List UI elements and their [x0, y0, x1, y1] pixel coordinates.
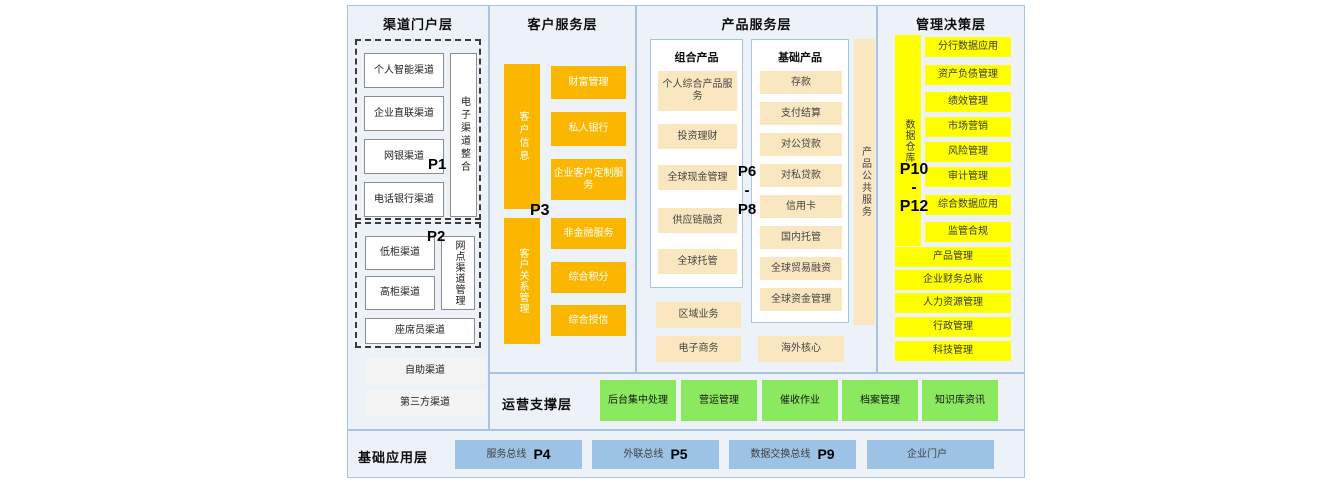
foundation-box-label: 服务总线 [486, 449, 526, 461]
foundation-box: 外联总线 P5 [592, 440, 719, 469]
p12-label: P12 [892, 198, 936, 216]
channel-box: 高柜渠道 [365, 276, 435, 310]
branch-channel-mgmt-label: 网点渠道管理 [452, 240, 464, 306]
product-box: 投资理财 [658, 124, 737, 149]
product-box: 存款 [760, 71, 842, 94]
service-box: 财富管理 [551, 66, 626, 99]
p10-p12-label: P10 - P12 [892, 161, 936, 216]
p-dash: - [892, 179, 936, 197]
foundation-box-label: 数据交换总线 [750, 449, 810, 461]
operation-box: 知识库资讯 [922, 380, 998, 421]
layer-operation-title: 运营支撑层 [502, 394, 572, 413]
management-box: 资产负债管理 [925, 65, 1011, 85]
management-box: 分行数据应用 [925, 37, 1011, 57]
basic-product-panel: 基础产品 存款 支付结算 对公贷款 对私贷款 信用卡 国内托管 全球贸易融资 全… [751, 39, 849, 323]
channel-box: 第三方渠道 [365, 390, 485, 416]
p6-label: P6 [732, 163, 762, 182]
channel-box: 座席员渠道 [365, 318, 475, 344]
customer-info-label: 客户信息 [516, 111, 528, 163]
channel-box: 低柜渠道 [365, 236, 435, 270]
foundation-box-label: 外联总线 [623, 449, 663, 461]
overseas-core-box: 海外核心 [758, 336, 844, 362]
management-wide-box: 企业财务总账 [895, 270, 1011, 290]
combo-product-title: 组合产品 [651, 40, 742, 65]
layer-customer-title: 客户服务层 [490, 6, 635, 33]
product-box: 全球资金管理 [760, 288, 842, 311]
management-box: 审计管理 [925, 167, 1011, 187]
operation-box: 营运管理 [681, 380, 757, 421]
product-box: 全球托管 [658, 249, 737, 274]
product-box: 区域业务 [656, 302, 741, 328]
p4-label: P4 [533, 446, 550, 463]
layer-management-title: 管理决策层 [878, 6, 1024, 33]
basic-product-title: 基础产品 [752, 40, 848, 65]
customer-info-bar: 客户信息 [504, 64, 540, 209]
channel-box: 个人智能渠道 [364, 53, 444, 88]
channel-integration-bar: 电子渠道整合 [450, 53, 477, 217]
p2-label: P2 [427, 228, 445, 245]
foundation-box: 服务总线 P4 [455, 440, 582, 469]
management-box: 绩效管理 [925, 92, 1011, 112]
foundation-box: 数据交换总线 P9 [729, 440, 856, 469]
data-warehouse-label: 数据仓库 [902, 119, 914, 163]
product-box: 对公贷款 [760, 133, 842, 156]
channel-box: 自助渠道 [365, 358, 485, 384]
p8-label: P8 [732, 201, 762, 220]
p1-label: P1 [428, 156, 446, 173]
p6-p8-label: P6 - P8 [732, 163, 762, 219]
product-box: 对私贷款 [760, 164, 842, 187]
branch-channel-mgmt-bar: 网点渠道管理 [441, 236, 475, 310]
layer-management: 管理决策层 数据仓库 分行数据应用 资产负债管理 绩效管理 市场营销 风险管理 … [877, 5, 1025, 373]
management-wide-box: 人力资源管理 [895, 293, 1011, 313]
operation-box: 后台集中处理 [600, 380, 676, 421]
product-box: 个人综合产品服务 [658, 71, 737, 111]
management-box: 风险管理 [925, 142, 1011, 162]
service-box: 非金融服务 [551, 218, 626, 249]
combo-product-panel: 组合产品 个人综合产品服务 投资理财 全球现金管理 供应链融资 全球托管 [650, 39, 743, 288]
product-box: 支付结算 [760, 102, 842, 125]
p5-label: P5 [670, 446, 687, 463]
service-box: 综合积分 [551, 262, 626, 293]
portal-p2-group: 低柜渠道 高柜渠道 网点渠道管理 座席员渠道 [355, 222, 481, 348]
channel-box: 电话银行渠道 [364, 182, 444, 217]
product-box: 全球现金管理 [658, 165, 737, 190]
service-box: 综合授信 [551, 305, 626, 336]
management-wide-box: 科技管理 [895, 341, 1011, 361]
management-box: 市场营销 [925, 117, 1011, 137]
channel-box: 企业直联渠道 [364, 96, 444, 131]
product-box: 电子商务 [656, 336, 741, 362]
product-box: 信用卡 [760, 195, 842, 218]
management-box: 综合数据应用 [925, 195, 1011, 215]
portal-p1-group: 个人智能渠道 企业直联渠道 网银渠道 电话银行渠道 电子渠道整合 [355, 39, 481, 220]
layer-operation: 运营支撑层 后台集中处理 营运管理 催收作业 档案管理 知识库资讯 [489, 373, 1025, 430]
layer-portal: 渠道门户层 个人智能渠道 企业直联渠道 网银渠道 电话银行渠道 电子渠道整合 P… [347, 5, 489, 430]
crm-bar: 客户关系管理 [504, 218, 540, 344]
architecture-diagram: 渠道门户层 个人智能渠道 企业直联渠道 网银渠道 电话银行渠道 电子渠道整合 P… [0, 0, 1333, 482]
service-box: 私人银行 [551, 112, 626, 146]
service-box: 企业客户定制服务 [551, 159, 626, 200]
product-public-service-label: 产品公共服务 [859, 146, 871, 218]
product-public-service-bar: 产品公共服务 [854, 39, 875, 325]
operation-box: 档案管理 [842, 380, 918, 421]
operation-box: 催收作业 [762, 380, 838, 421]
management-wide-box: 产品管理 [895, 247, 1011, 267]
layer-foundation-title: 基础应用层 [358, 447, 428, 466]
layer-product-title: 产品服务层 [637, 6, 876, 33]
p10-label: P10 [892, 161, 936, 179]
layer-customer: 客户服务层 客户信息 财富管理 私人银行 企业客户定制服务 P3 客户关系管理 … [489, 5, 636, 373]
p9-label: P9 [817, 446, 834, 463]
product-box: 供应链融资 [658, 208, 737, 233]
p3-label: P3 [530, 202, 550, 220]
p-dash: - [732, 182, 762, 201]
layer-portal-title: 渠道门户层 [348, 6, 488, 33]
product-box: 国内托管 [760, 226, 842, 249]
layer-product: 产品服务层 组合产品 个人综合产品服务 投资理财 全球现金管理 供应链融资 全球… [636, 5, 877, 373]
channel-integration-label: 电子渠道整合 [458, 96, 470, 174]
management-box: 监管合规 [925, 222, 1011, 242]
crm-label: 客户关系管理 [516, 248, 528, 314]
foundation-box: 企业门户 [867, 440, 994, 469]
management-wide-box: 行政管理 [895, 317, 1011, 337]
foundation-box-label: 企业门户 [907, 449, 947, 461]
layer-foundation: 基础应用层 服务总线 P4 外联总线 P5 数据交换总线 P9 企业门户 [347, 430, 1025, 478]
product-box: 全球贸易融资 [760, 257, 842, 280]
